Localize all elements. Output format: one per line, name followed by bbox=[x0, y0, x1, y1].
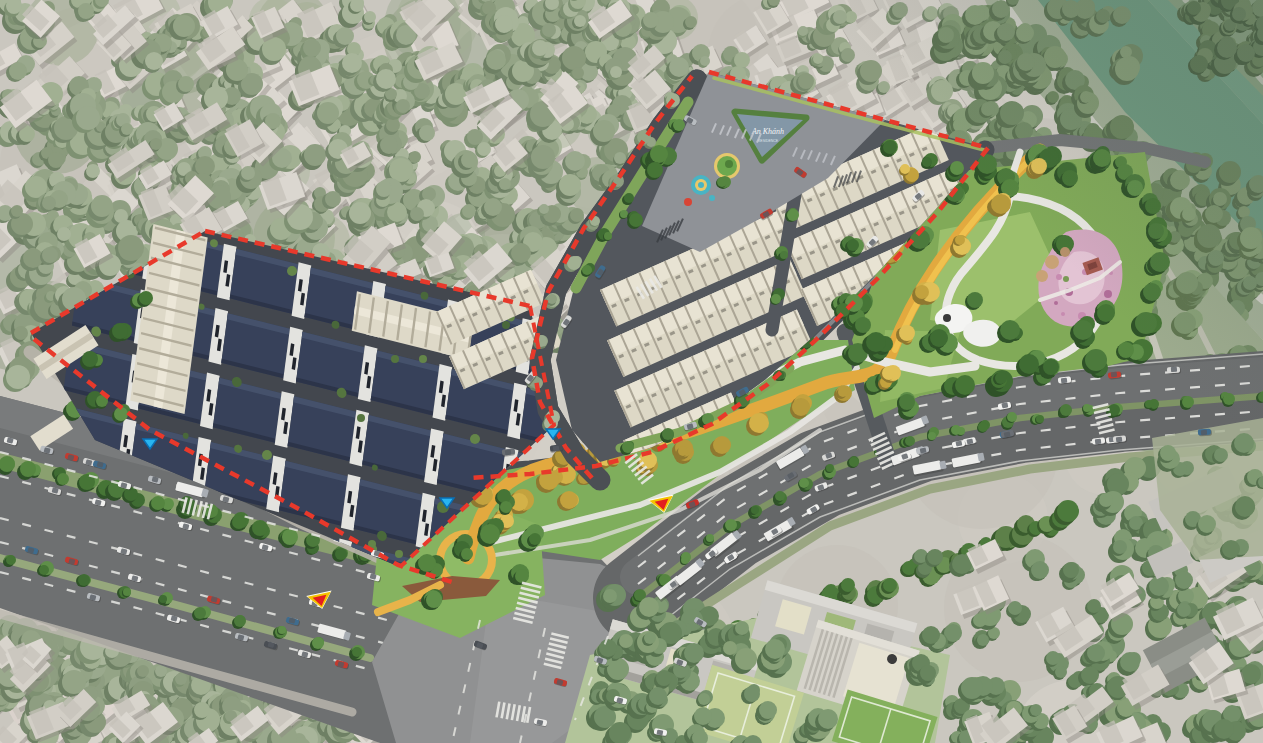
svg-text:An Khánh: An Khánh bbox=[751, 127, 784, 136]
svg-text:RESIDENCE: RESIDENCE bbox=[758, 139, 779, 143]
